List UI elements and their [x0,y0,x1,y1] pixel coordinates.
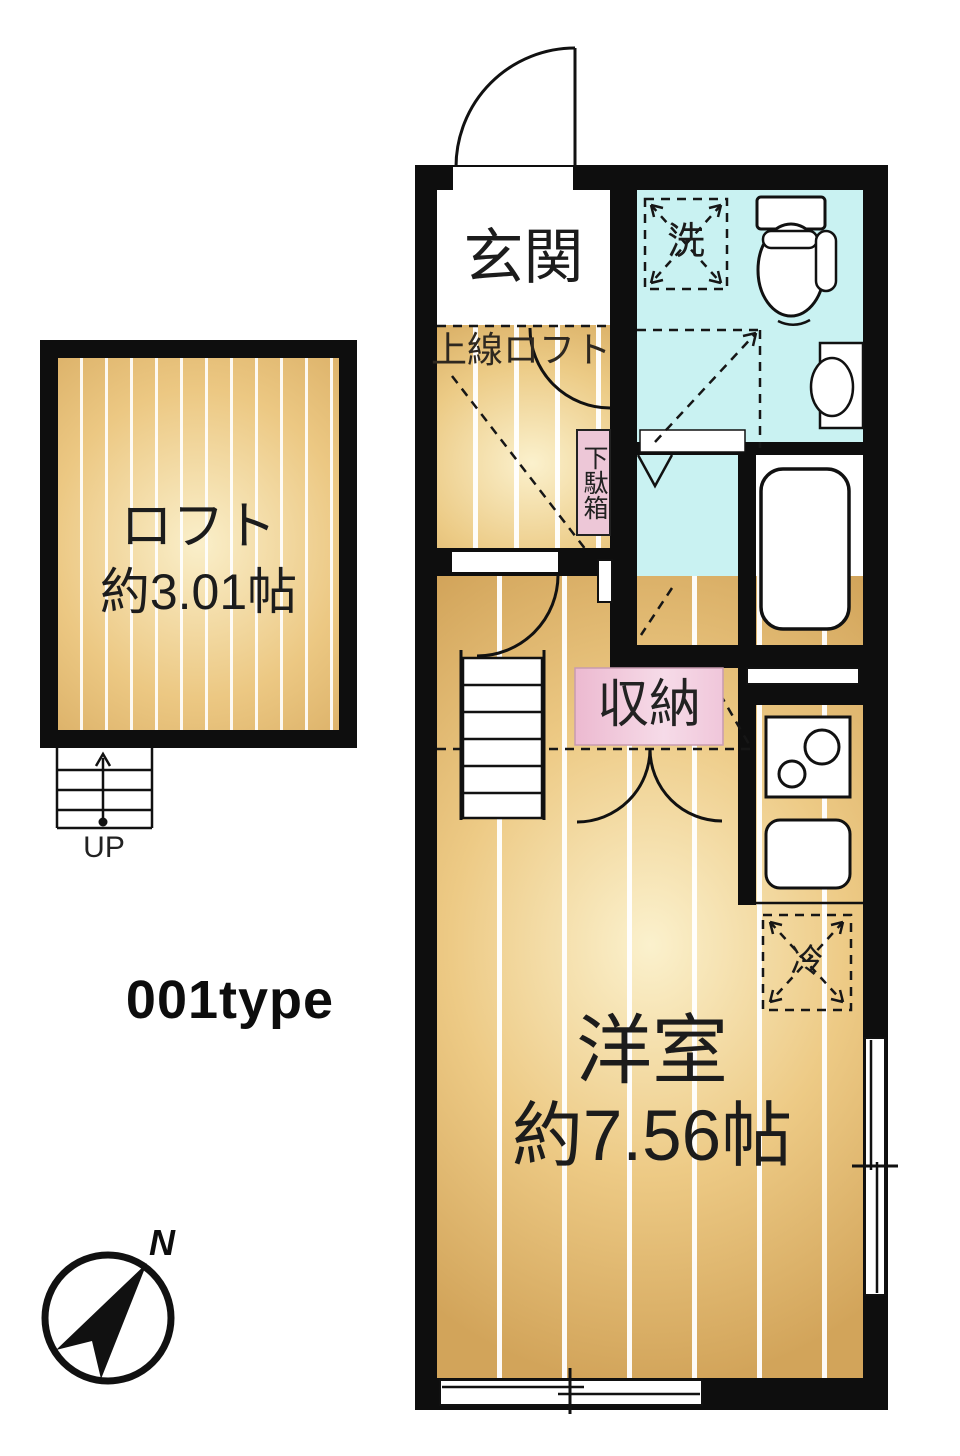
loft-stairs [57,748,152,828]
compass-north-label: N [140,1224,184,1262]
storage-label: 収納 [575,678,723,733]
loft-size: 約3.01帖 [58,566,339,619]
western-room-name: 洋室 [437,1012,867,1092]
plan-type-label: 001type [90,972,370,1029]
floor-plan-canvas: 玄関 上線ロフト 洗 下駄箱 収納 冷 洋室 約7.56帖 ロフト 約3.01帖… [0,0,960,1456]
compass [45,1255,171,1381]
entrance-label: 玄関 [437,226,610,289]
stairs-up-label: UP [74,832,134,864]
loft-overhead-note: 上線ロフト [430,331,612,369]
fridge-label: 冷 [763,944,851,979]
shoe-cabinet-label: 下駄箱 [577,432,610,533]
entrance-door [456,48,575,167]
washer-label: 洗 [645,223,727,263]
loft-name: ロフト [58,500,339,555]
western-room-size: 約7.56帖 [437,1100,867,1175]
